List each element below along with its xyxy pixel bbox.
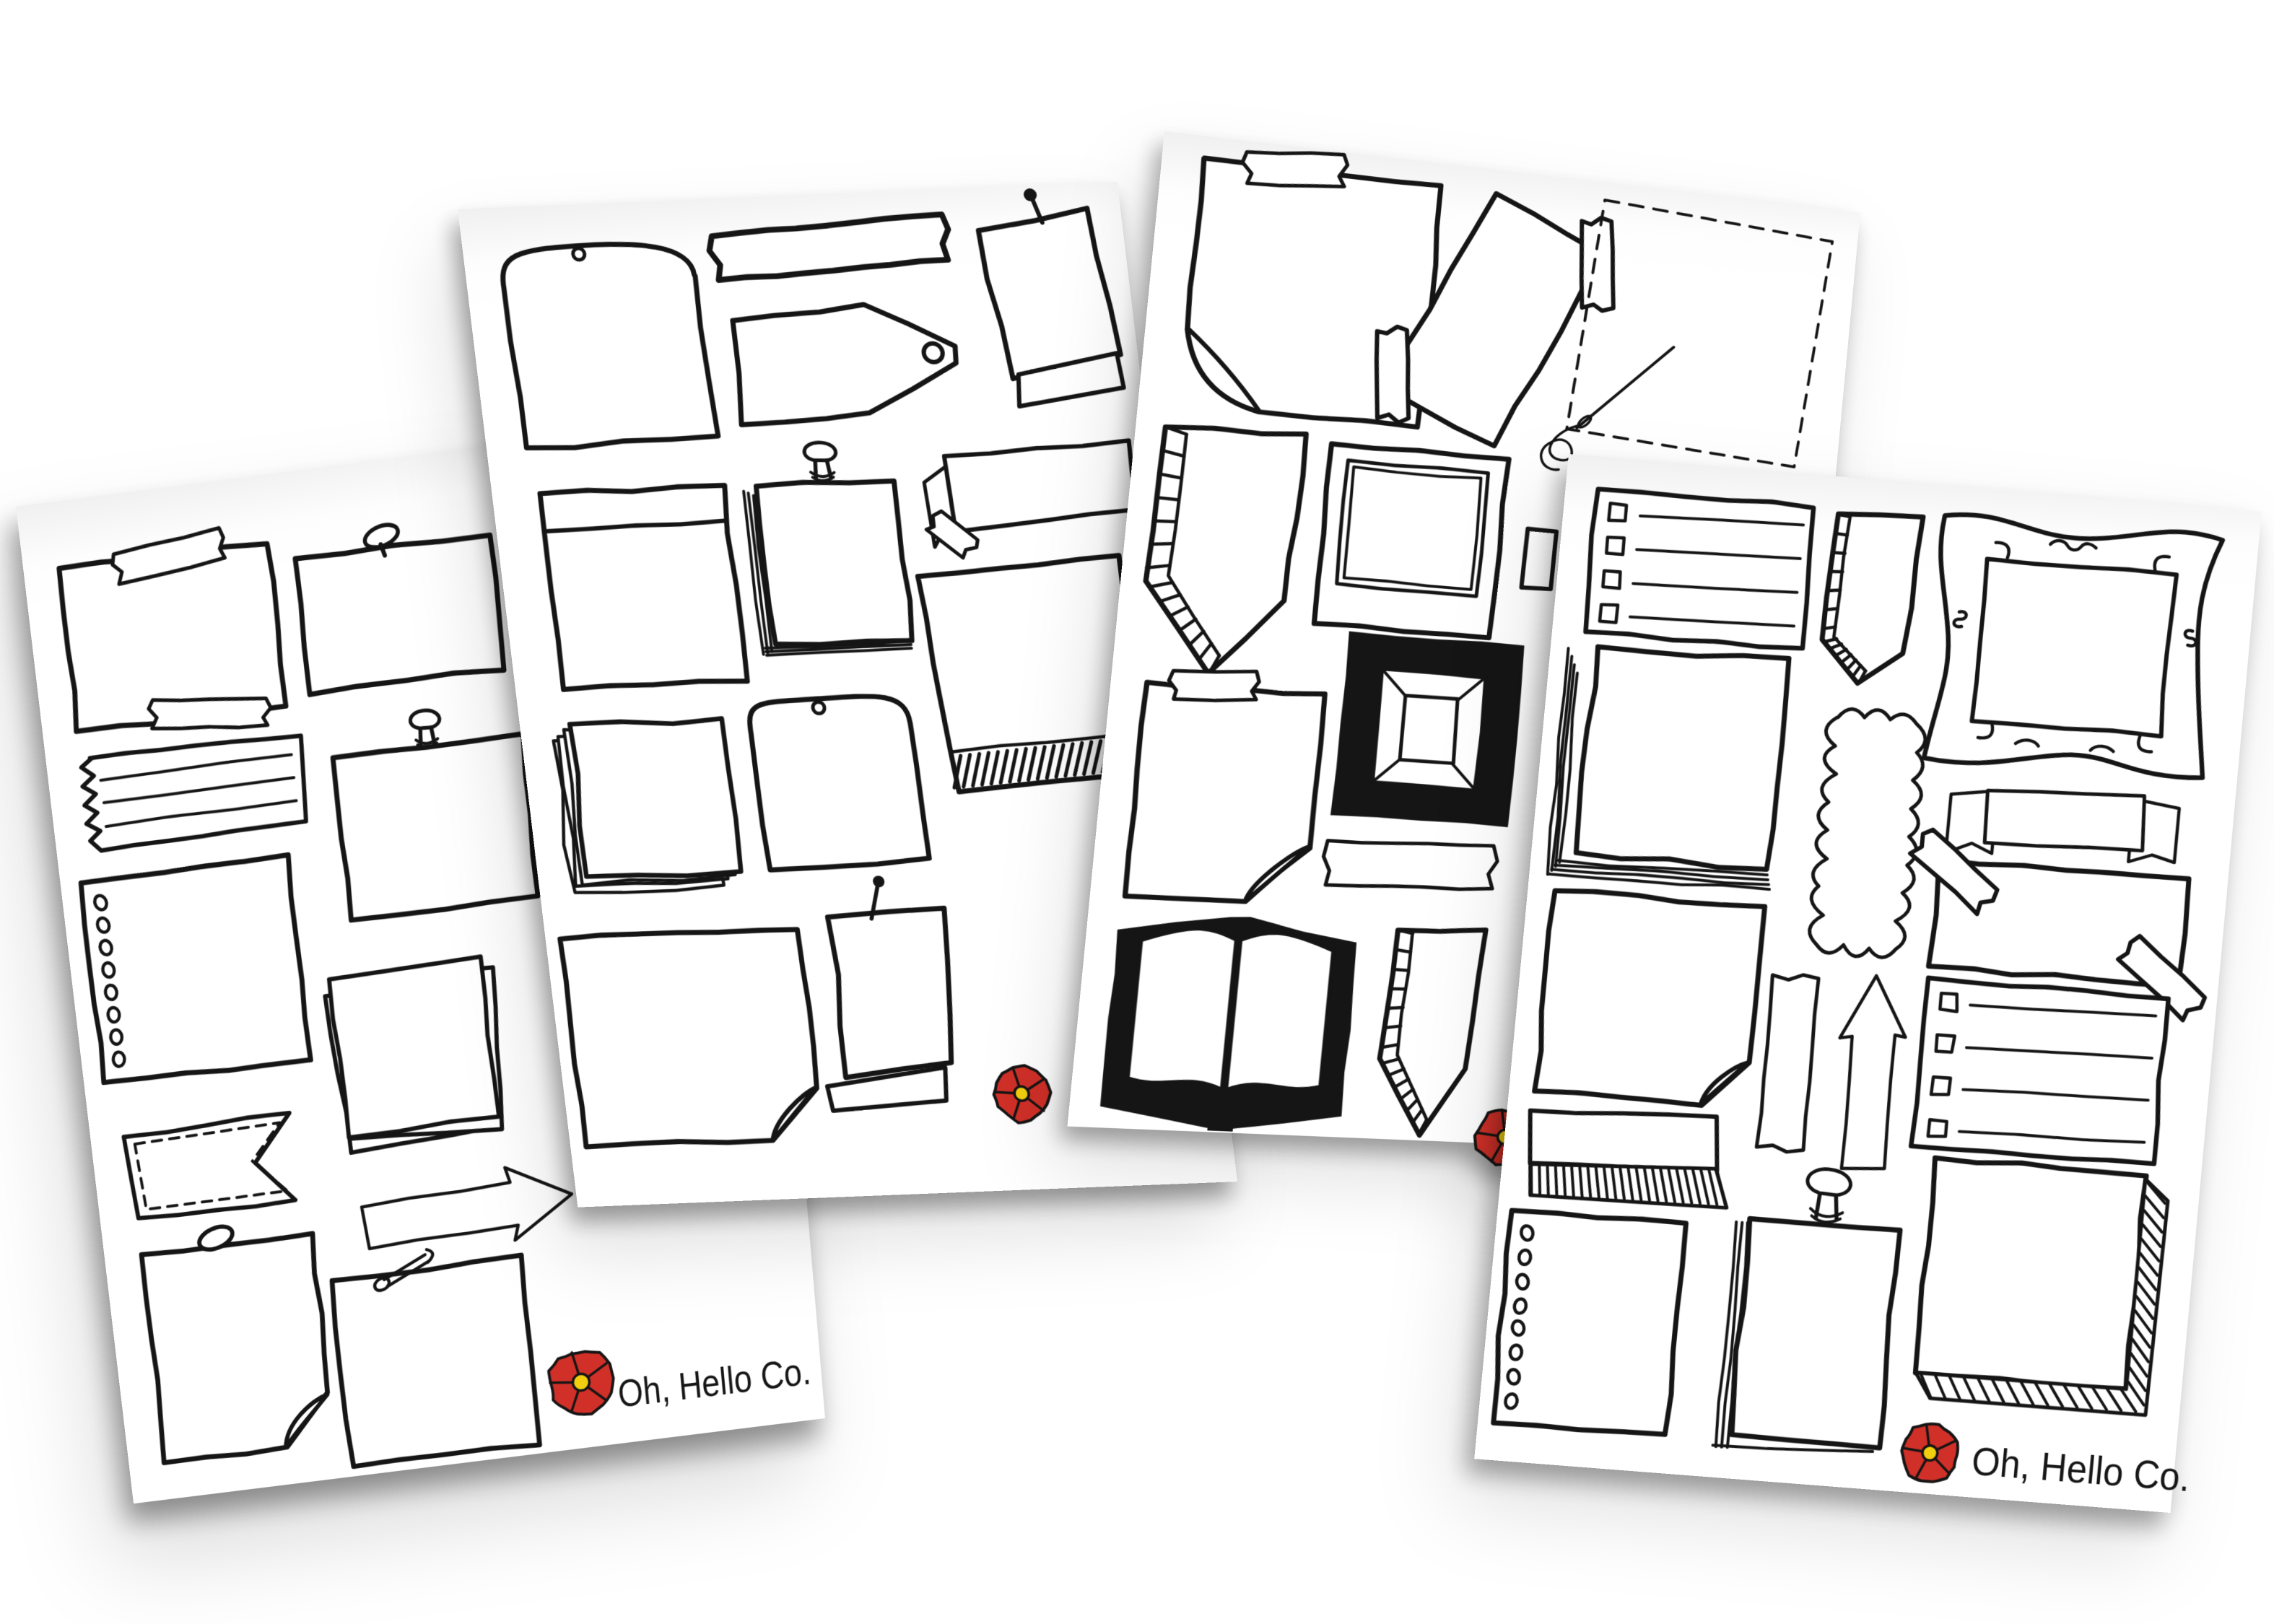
svg-text:Oh, Hello Co.: Oh, Hello Co. (616, 1350, 812, 1416)
svg-text:Oh, Hello Co.: Oh, Hello Co. (1970, 1438, 2192, 1500)
